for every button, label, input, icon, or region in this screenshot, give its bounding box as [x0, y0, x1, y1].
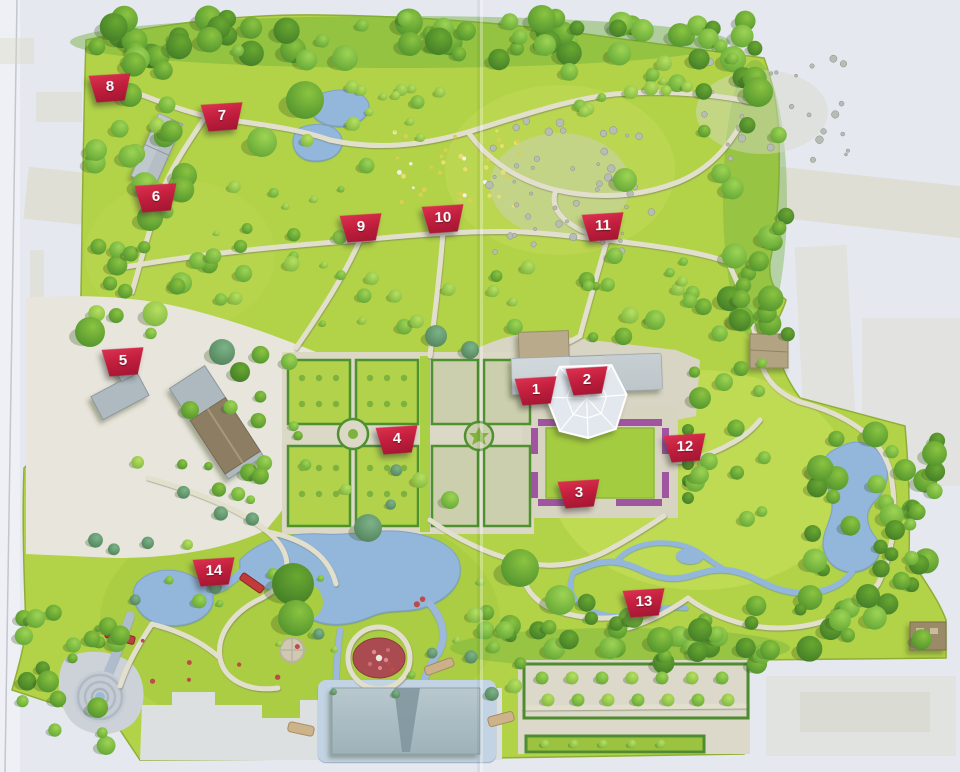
marker-number: 1	[515, 380, 558, 399]
map-marker-13[interactable]: 13	[623, 588, 666, 617]
map-marker-9[interactable]: 9	[340, 213, 383, 242]
map-marker-2[interactable]: 2	[566, 366, 609, 395]
map-marker-8[interactable]: 8	[89, 73, 132, 102]
map-marker-12[interactable]: 12	[664, 433, 707, 462]
marker-number: 5	[102, 351, 145, 370]
marker-number: 6	[135, 187, 178, 206]
map-marker-10[interactable]: 10	[422, 204, 465, 233]
marker-number: 10	[422, 208, 465, 227]
map-marker-7[interactable]: 7	[201, 102, 244, 131]
marker-number: 4	[376, 429, 419, 448]
map-marker-3[interactable]: 3	[558, 479, 601, 508]
marker-number: 2	[566, 370, 609, 389]
markers-layer: 1234567891011121314	[0, 0, 960, 772]
marker-number: 12	[664, 437, 707, 456]
map-marker-6[interactable]: 6	[135, 183, 178, 212]
map-marker-11[interactable]: 11	[582, 212, 625, 241]
marker-number: 9	[340, 217, 383, 236]
map-marker-5[interactable]: 5	[102, 347, 145, 376]
marker-number: 7	[201, 106, 244, 125]
marker-number: 8	[89, 77, 132, 96]
map-marker-4[interactable]: 4	[376, 425, 419, 454]
marker-number: 14	[193, 561, 236, 580]
marker-number: 13	[623, 592, 666, 611]
park-map-page: 1234567891011121314	[0, 0, 960, 772]
marker-number: 11	[582, 216, 625, 235]
map-marker-1[interactable]: 1	[515, 376, 558, 405]
marker-number: 3	[558, 483, 601, 502]
map-marker-14[interactable]: 14	[193, 557, 236, 586]
